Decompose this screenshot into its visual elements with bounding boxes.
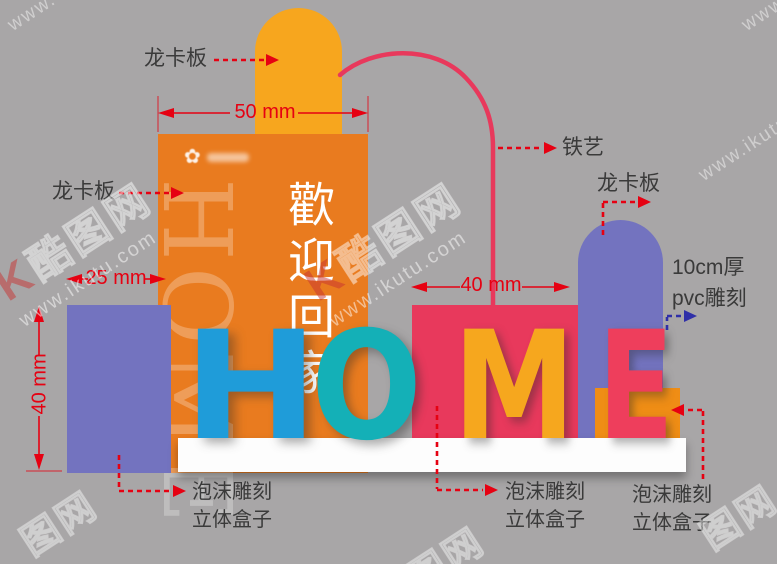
dim40v-arrow-up — [34, 306, 44, 322]
callout-foam-mid-arrow — [485, 484, 498, 496]
dim40h-arrow-left — [411, 282, 427, 292]
dim40v-arrow-down — [34, 454, 44, 470]
dim25-arrow-left — [66, 274, 82, 284]
dim25-arrow-right — [150, 274, 166, 284]
label-foam-mid-line1: 泡沫雕刻 — [505, 478, 585, 506]
label-foam-right-line2: 立体盒子 — [632, 509, 712, 537]
callout-foam-left-arrow — [173, 485, 186, 497]
label-foam-left-line2: 立体盒子 — [192, 506, 272, 534]
letter-o: O — [311, 300, 422, 474]
label-foam-mid: 泡沫雕刻 立体盒子 — [505, 478, 585, 534]
label-foam-right-line1: 泡沫雕刻 — [632, 481, 712, 509]
label-cardboard-right: 龙卡板 — [597, 172, 660, 196]
label-pvc-line2: pvc雕刻 — [672, 283, 747, 314]
label-pvc-line1: 10cm厚 — [672, 252, 747, 283]
callout-iron-arrow — [544, 142, 557, 154]
label-foam-left-line1: 泡沫雕刻 — [192, 478, 272, 506]
letter-e: E — [598, 300, 674, 474]
callout-cardboard-top-arrow — [266, 54, 279, 66]
label-foam-left: 泡沫雕刻 立体盒子 — [192, 478, 272, 534]
design-canvas: HOME ✿ 歡迎回家 H O M E — [0, 0, 777, 564]
dim-left-box-height: 40 mm — [29, 359, 52, 415]
letter-m: M — [453, 300, 575, 474]
label-cardboard-left: 龙卡板 — [52, 180, 115, 204]
dim50-arrow-right — [352, 108, 368, 118]
dim40h-arrow-right — [554, 282, 570, 292]
letter-h: H — [183, 299, 319, 474]
dim-top-width: 50 mm — [230, 101, 300, 124]
label-foam-right: 泡沫雕刻 立体盒子 — [632, 481, 712, 537]
callout-cardboard-left-arrow — [171, 187, 184, 199]
label-cardboard-top: 龙卡板 — [144, 47, 207, 71]
label-foam-mid-line2: 立体盒子 — [505, 506, 585, 534]
label-iron-art: 铁艺 — [562, 136, 604, 160]
callout-cardboard-right-arrow — [638, 196, 651, 208]
iron-art-curve — [340, 53, 493, 305]
dim-left-box-width: 25 mm — [85, 267, 147, 290]
label-pvc: 10cm厚 pvc雕刻 — [672, 252, 747, 314]
dim-red-panel-width: 40 mm — [456, 274, 526, 297]
dim50-arrow-left — [158, 108, 174, 118]
